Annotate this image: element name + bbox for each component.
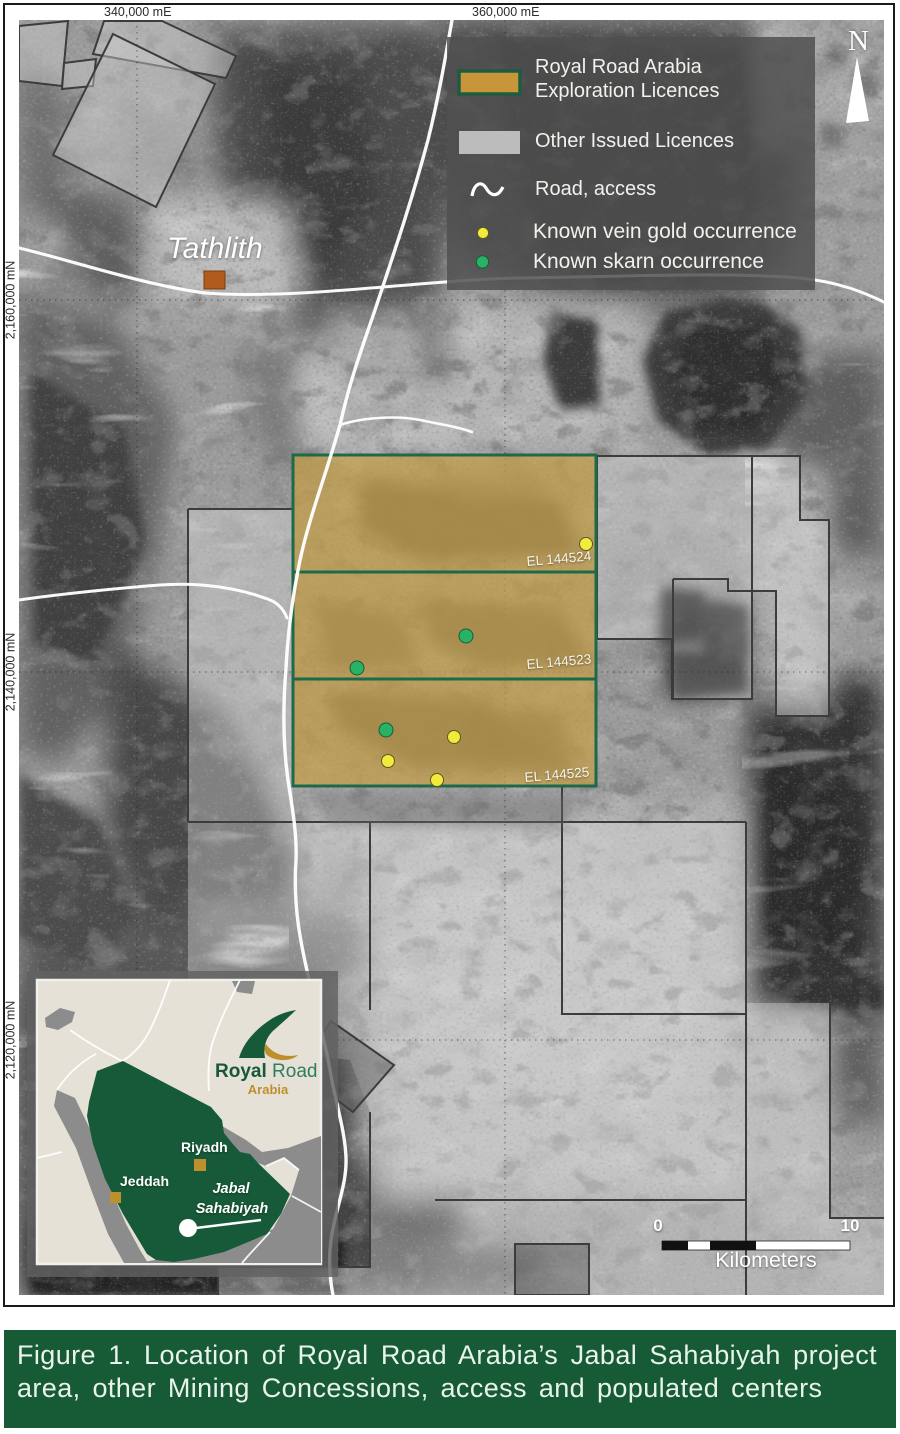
svg-text:Sahabiyah: Sahabiyah bbox=[196, 1201, 269, 1217]
svg-text:Royal Road Arabia: Royal Road Arabia bbox=[535, 56, 703, 78]
svg-text:Tathlith: Tathlith bbox=[167, 232, 263, 265]
svg-text:Royal Road: Royal Road bbox=[215, 1061, 317, 1082]
svg-text:10: 10 bbox=[841, 1216, 860, 1235]
svg-text:Riyadh: Riyadh bbox=[181, 1139, 228, 1155]
svg-text:Arabia: Arabia bbox=[248, 1082, 289, 1097]
svg-text:Other Issued Licences: Other Issued Licences bbox=[535, 130, 734, 152]
svg-text:N: N bbox=[848, 25, 869, 57]
svg-text:Kilometers: Kilometers bbox=[715, 1248, 817, 1272]
svg-text:Known vein gold occurrence: Known vein gold occurrence bbox=[533, 220, 797, 243]
svg-text:Jabal: Jabal bbox=[212, 1181, 250, 1197]
svg-text:Jeddah: Jeddah bbox=[120, 1173, 169, 1189]
svg-text:Known skarn occurrence: Known skarn occurrence bbox=[533, 250, 764, 273]
svg-text:0: 0 bbox=[653, 1216, 662, 1235]
svg-text:Road, access: Road, access bbox=[535, 178, 656, 200]
svg-text:Exploration Licences: Exploration Licences bbox=[535, 80, 720, 102]
